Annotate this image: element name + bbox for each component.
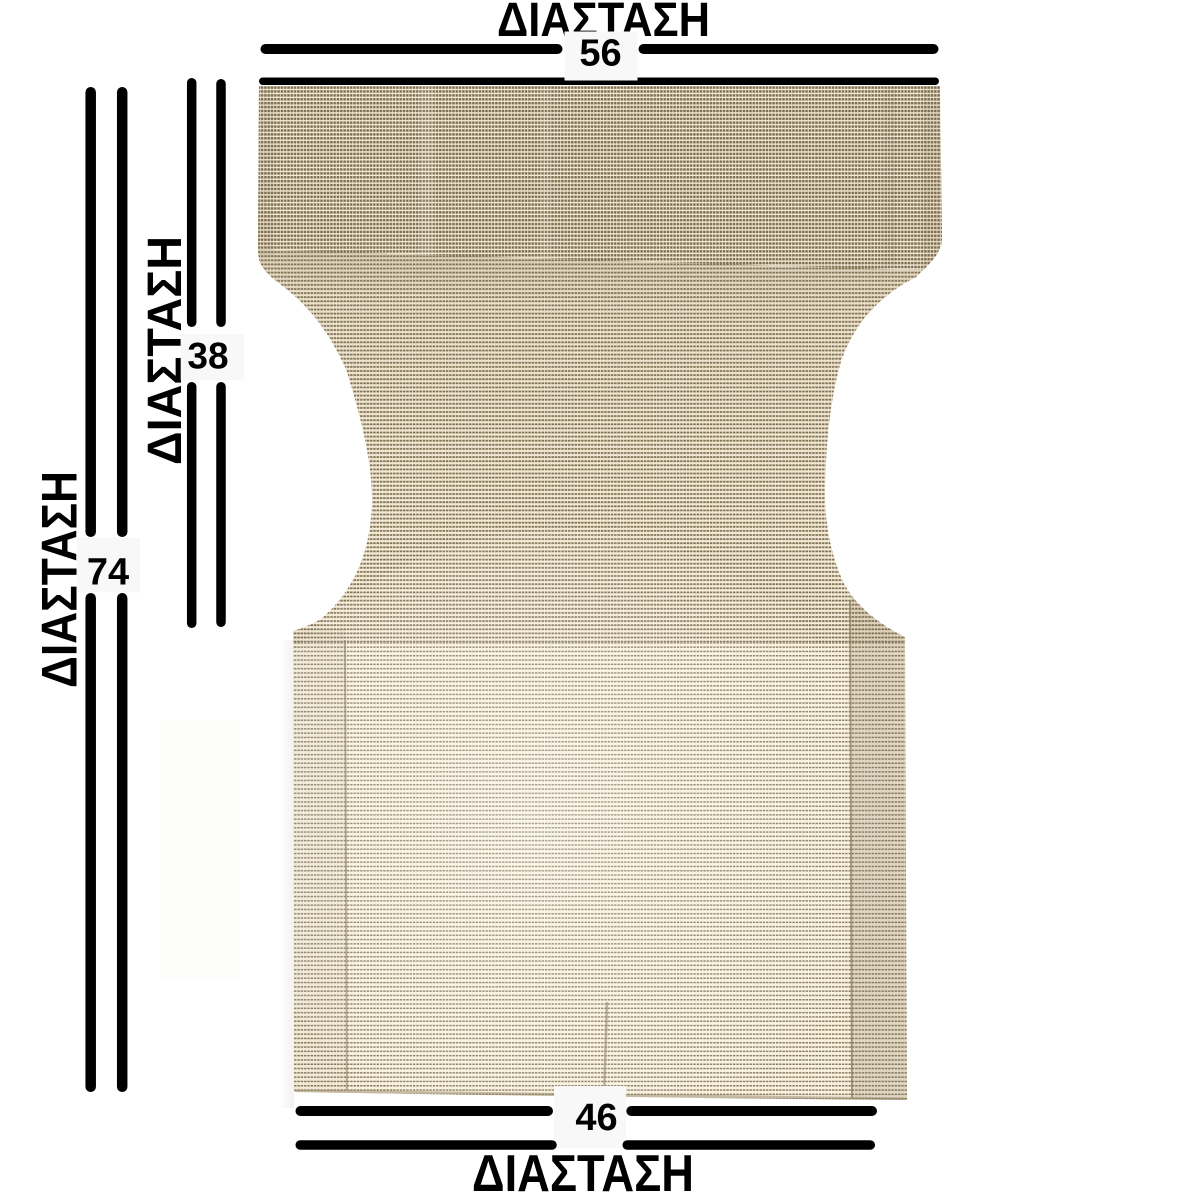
svg-text:38: 38 <box>187 335 228 376</box>
svg-text:46: 46 <box>575 1097 617 1139</box>
svg-text:74: 74 <box>87 552 129 594</box>
svg-text:56: 56 <box>579 33 621 75</box>
svg-text:ΔΙΑΣΤΑΣΗ: ΔΙΑΣΤΑΣΗ <box>472 1145 694 1200</box>
